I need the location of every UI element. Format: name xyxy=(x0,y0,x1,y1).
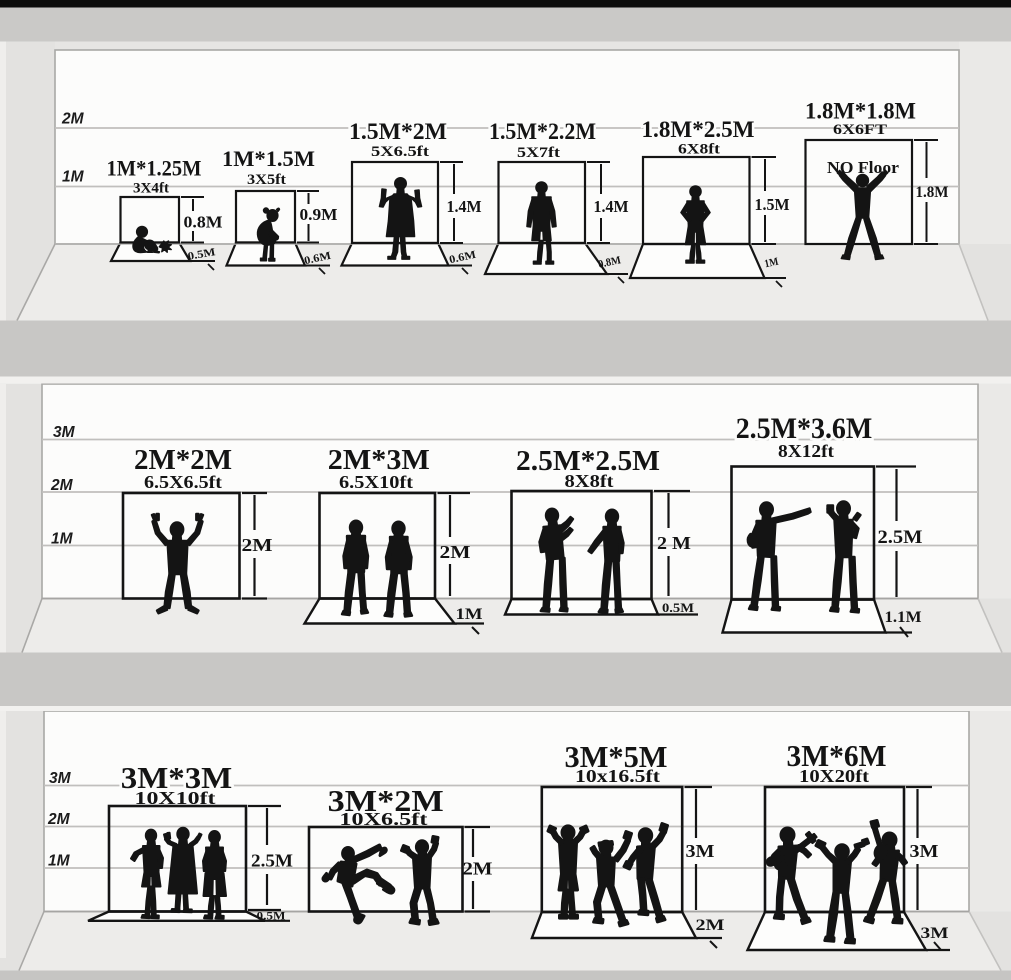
svg-text:10x16.5ft: 10x16.5ft xyxy=(575,766,660,786)
svg-text:6X8ft: 6X8ft xyxy=(678,142,720,158)
svg-text:8X8ft: 8X8ft xyxy=(565,471,614,491)
svg-text:0.5M: 0.5M xyxy=(257,909,286,923)
svg-text:1M*1.25M: 1M*1.25M xyxy=(107,156,202,181)
svg-text:1M*1.5M: 1M*1.5M xyxy=(222,146,315,171)
svg-text:6.5X6.5ft: 6.5X6.5ft xyxy=(144,472,222,492)
svg-text:3M: 3M xyxy=(686,841,715,861)
svg-text:1.8M*2.5M: 1.8M*2.5M xyxy=(642,117,755,142)
svg-text:6.5X10ft: 6.5X10ft xyxy=(339,472,413,492)
svg-text:3M: 3M xyxy=(53,424,76,441)
svg-text:3M: 3M xyxy=(921,925,949,942)
svg-text:2M: 2M xyxy=(50,477,74,494)
svg-text:1.8M: 1.8M xyxy=(916,184,949,201)
svg-text:2M: 2M xyxy=(696,917,725,934)
svg-text:0.9M: 0.9M xyxy=(300,205,338,224)
svg-text:2M: 2M xyxy=(242,535,273,555)
svg-text:1.4M: 1.4M xyxy=(447,197,482,216)
svg-text:2M: 2M xyxy=(61,111,85,128)
svg-text:0.8M: 0.8M xyxy=(184,213,223,232)
svg-text:3X5ft: 3X5ft xyxy=(247,172,286,188)
svg-text:2.5M: 2.5M xyxy=(251,851,293,871)
svg-text:0.5M: 0.5M xyxy=(662,601,694,615)
svg-text:1.1M: 1.1M xyxy=(885,609,922,626)
svg-text:3X4ft: 3X4ft xyxy=(133,181,169,197)
svg-text:2.5M: 2.5M xyxy=(878,528,923,548)
svg-text:6X6FT: 6X6FT xyxy=(833,122,887,138)
svg-text:8X12ft: 8X12ft xyxy=(778,441,834,461)
svg-text:10X20ft: 10X20ft xyxy=(799,766,869,786)
svg-text:1.5M*2M: 1.5M*2M xyxy=(349,119,447,144)
svg-text:5X7ft: 5X7ft xyxy=(517,145,560,161)
svg-text:5X6.5ft: 5X6.5ft xyxy=(371,144,429,160)
svg-text:2M: 2M xyxy=(440,542,471,562)
svg-text:1M: 1M xyxy=(48,853,71,870)
svg-text:1.4M: 1.4M xyxy=(594,197,629,216)
svg-text:1M: 1M xyxy=(62,169,85,186)
svg-text:2M: 2M xyxy=(47,811,71,828)
svg-text:1.5M*2.2M: 1.5M*2.2M xyxy=(489,119,596,144)
svg-text:3M: 3M xyxy=(910,841,939,861)
svg-text:1M: 1M xyxy=(51,531,74,548)
svg-text:1.8M*1.8M: 1.8M*1.8M xyxy=(805,99,916,124)
svg-text:1M: 1M xyxy=(456,606,483,623)
svg-text:2 M: 2 M xyxy=(657,533,691,553)
svg-text:3M: 3M xyxy=(49,770,72,787)
svg-text:2M: 2M xyxy=(463,859,493,879)
svg-text:1.5M: 1.5M xyxy=(755,195,790,214)
